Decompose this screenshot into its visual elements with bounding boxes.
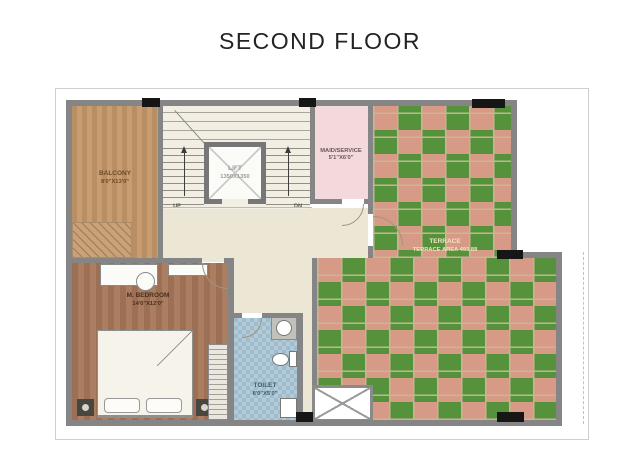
- balcony-label: BALCONY 8'0"X13'0": [84, 169, 146, 185]
- lift-dims: 1350X1350: [216, 173, 253, 180]
- wall-maid-left: [310, 100, 315, 199]
- lift-door-opening: [222, 199, 248, 207]
- terrace-area: TERRACE AREA 493.88: [395, 246, 496, 253]
- column: [142, 98, 160, 107]
- wall-hall-terrace: [312, 258, 317, 385]
- wall-terrace-right-upper: [511, 100, 517, 258]
- shower-tray: [280, 398, 297, 418]
- lamp-icon: [201, 404, 208, 411]
- lift-label: LIFT 1350X1350: [216, 164, 253, 180]
- wall-maid-bottom-left: [310, 199, 342, 204]
- maid-room-dims: 5'1"X6'0": [318, 154, 364, 161]
- wall-terrace-left-upper: [368, 100, 373, 214]
- wc-tank: [289, 351, 297, 367]
- balcony-name: BALCONY: [84, 169, 146, 177]
- wall-toilet-top-left: [234, 313, 242, 318]
- wall-top: [66, 100, 517, 106]
- wc-bowl-icon: [272, 353, 289, 366]
- pillow: [104, 398, 140, 413]
- maid-door-arc: [342, 204, 364, 226]
- lift-shaft: LIFT 1350X1350: [204, 142, 266, 204]
- column: [299, 98, 316, 107]
- maid-room-name: MAID/SERVICE: [318, 147, 364, 154]
- projection-dashed-line: [583, 252, 584, 424]
- terrace-name: TERRACE: [395, 237, 496, 245]
- column: [497, 412, 524, 422]
- up-arrow-icon: [288, 150, 289, 196]
- bedroom-dims: 14'0"X12'0": [105, 300, 191, 307]
- bedroom-label: M. BEDROOM 14'0"X12'0": [105, 291, 191, 307]
- lamp-icon: [82, 404, 89, 411]
- hall-floor: [163, 208, 368, 262]
- wall-terrace-left-stub: [368, 246, 373, 258]
- bedroom-door-arc: [202, 263, 228, 289]
- wall-bedroom-toilet: [228, 263, 234, 420]
- page-title: SECOND FLOOR: [0, 28, 640, 55]
- wall-terrace-right-lower: [556, 252, 562, 426]
- column: [472, 99, 505, 108]
- wall-left: [66, 100, 72, 426]
- nightstand: [77, 399, 94, 416]
- wall-bedroom-top: [66, 258, 202, 263]
- toilet-name: TOILET: [244, 381, 286, 389]
- column: [497, 250, 523, 259]
- lift-name: LIFT: [216, 164, 253, 172]
- balcony-dims: 8'0"X13'0": [84, 178, 146, 185]
- toilet-dims: 8'0"X5'0": [244, 390, 286, 397]
- terrace-door-arc: [373, 216, 403, 246]
- wall-toilet-right: [297, 313, 303, 420]
- column: [296, 412, 313, 422]
- balcony-planter: [72, 222, 132, 258]
- toilet-label: TOILET 8'0"X5'0": [244, 381, 286, 397]
- stool: [136, 272, 155, 291]
- up-arrow-icon: [184, 150, 185, 196]
- terrace-label: TERRACE TERRACE AREA 493.88: [395, 237, 496, 253]
- stair-hall-divider: [163, 207, 312, 208]
- wall-bottom: [66, 420, 562, 426]
- floor-plan-canvas: SECOND FLOOR BALCONY 8'0"X13'0" UP DN LI…: [0, 0, 640, 453]
- duct-void-box: [312, 385, 373, 422]
- toilet-door-arc: [242, 318, 262, 338]
- pillow: [146, 398, 182, 413]
- hall-floor: [234, 262, 312, 313]
- bed-blanket-fold: [157, 331, 192, 366]
- bedroom-name: M. BEDROOM: [105, 291, 191, 299]
- wall-balcony-stair: [158, 100, 163, 258]
- sink-icon: [276, 320, 292, 336]
- wardrobe: [208, 344, 228, 420]
- maid-room-label: MAID/SERVICE 5'1"X6'0": [318, 147, 364, 162]
